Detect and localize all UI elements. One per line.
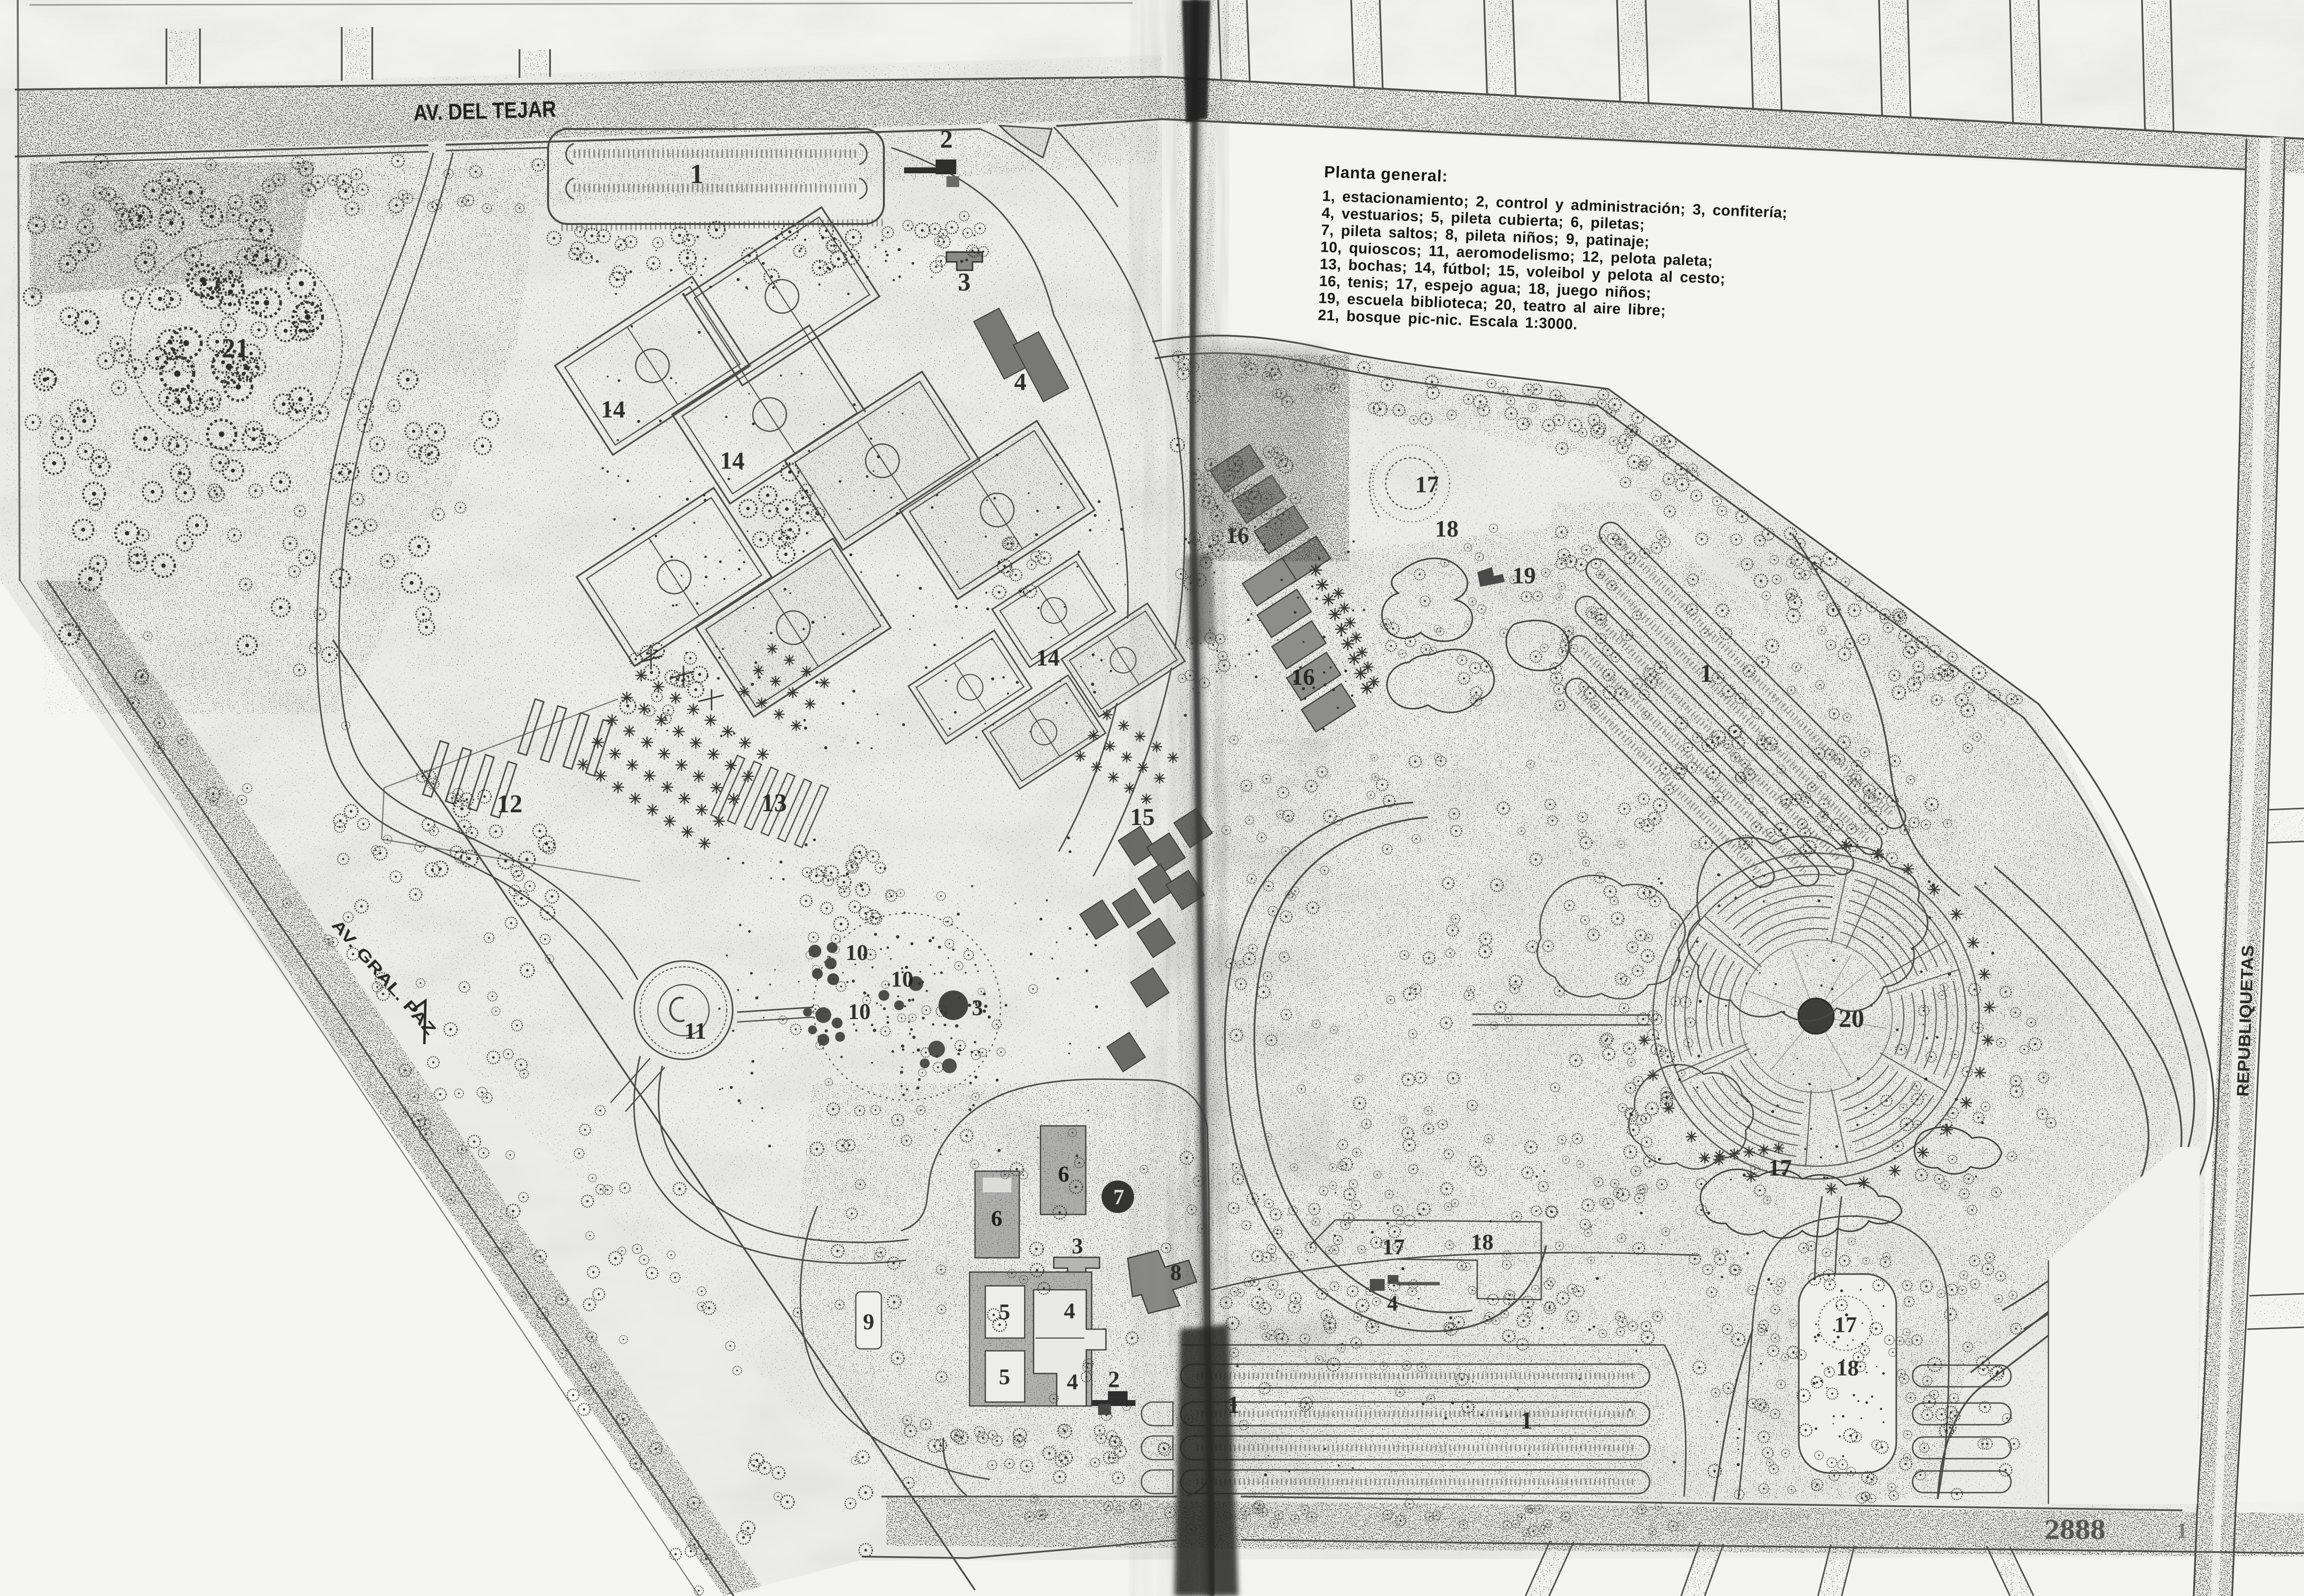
svg-text:13: 13: [761, 789, 787, 817]
svg-text:AV. DEL TEJAR: AV. DEL TEJAR: [413, 96, 556, 126]
svg-text:4: 4: [1014, 368, 1027, 395]
svg-text:7: 7: [1113, 1185, 1124, 1209]
svg-text:11: 11: [684, 1018, 706, 1044]
svg-text:18: 18: [1471, 1229, 1493, 1254]
svg-text:17: 17: [1382, 1234, 1405, 1259]
svg-text:6: 6: [991, 1206, 1003, 1231]
svg-text:14: 14: [601, 395, 625, 423]
svg-text:18: 18: [1836, 1355, 1859, 1380]
svg-text:5: 5: [999, 1299, 1010, 1324]
svg-text:20: 20: [1839, 1005, 1864, 1033]
svg-text:2: 2: [940, 126, 953, 154]
svg-text:16: 16: [1291, 664, 1315, 690]
svg-text:19: 19: [1512, 563, 1536, 589]
svg-text:4: 4: [1067, 1369, 1078, 1394]
svg-text:12: 12: [497, 790, 522, 818]
svg-text:14: 14: [720, 447, 745, 474]
svg-text:4: 4: [1064, 1298, 1075, 1323]
svg-text:10: 10: [848, 999, 871, 1024]
svg-text:6: 6: [1058, 1161, 1070, 1186]
svg-text:1: 1: [1521, 1406, 1533, 1434]
svg-text:10: 10: [845, 940, 868, 965]
svg-text:9: 9: [863, 1309, 875, 1334]
svg-text:3: 3: [1072, 1233, 1083, 1258]
svg-text:18: 18: [1435, 516, 1459, 542]
svg-text:14: 14: [1036, 645, 1060, 671]
svg-text:2888: 2888: [2044, 1513, 2106, 1545]
svg-text:3: 3: [958, 268, 971, 296]
svg-text:5: 5: [999, 1364, 1010, 1389]
svg-text:3: 3: [972, 995, 983, 1020]
svg-text:17: 17: [1415, 472, 1439, 498]
svg-text:1: 1: [1700, 660, 1713, 688]
svg-text:1: 1: [2176, 1519, 2187, 1543]
svg-text:10: 10: [891, 966, 913, 991]
svg-text:1: 1: [690, 159, 704, 190]
svg-text:4: 4: [1387, 1291, 1398, 1315]
svg-text:17: 17: [1768, 1155, 1792, 1181]
svg-text:2: 2: [1108, 1367, 1120, 1393]
